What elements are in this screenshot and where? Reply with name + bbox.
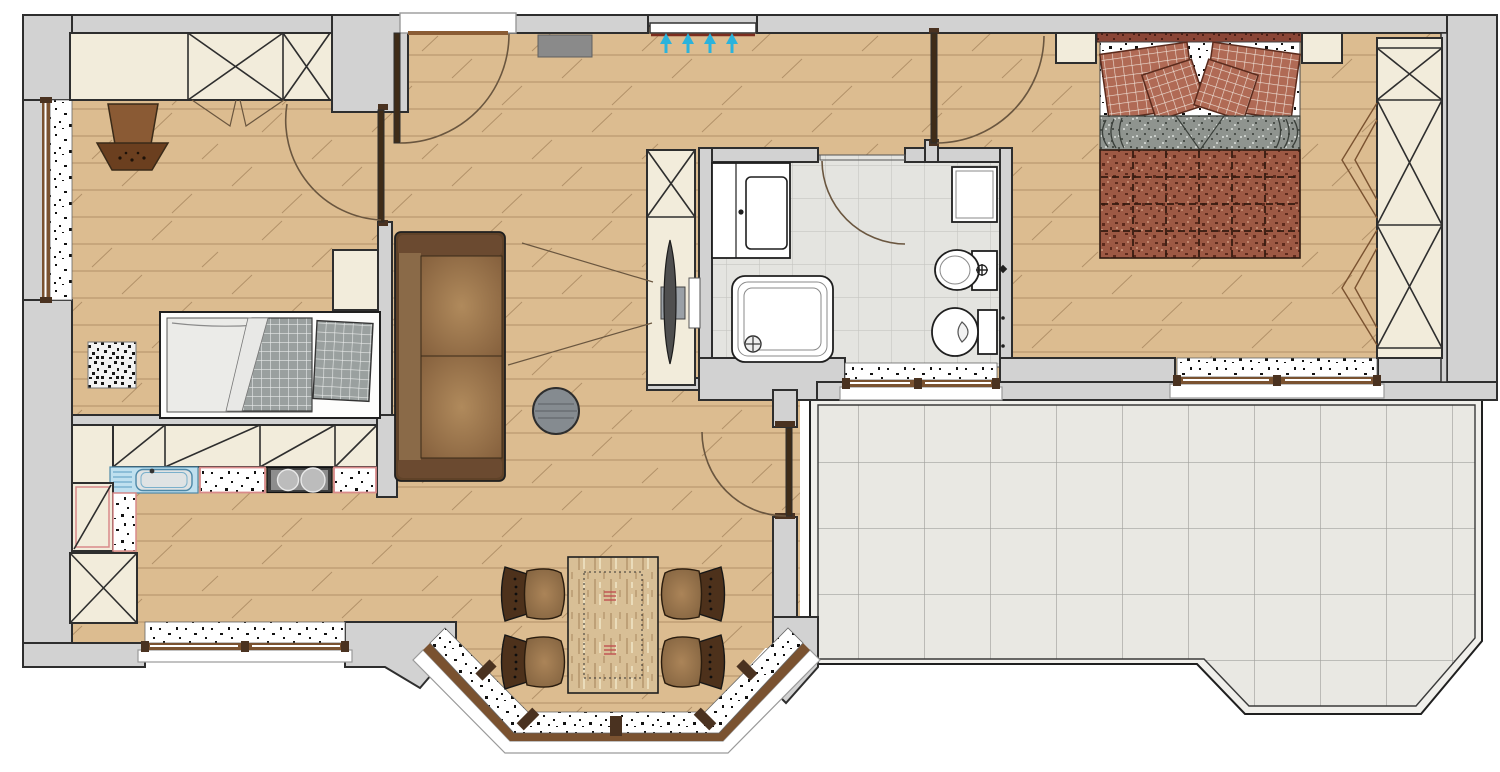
- fridge-cabinet: [72, 483, 113, 551]
- tall-cabinet-x: [70, 553, 137, 623]
- pillow: [313, 321, 373, 402]
- doormat: [538, 35, 592, 57]
- shower: [732, 276, 833, 362]
- upper-cabinet-row: [72, 425, 377, 467]
- worktop: [200, 468, 265, 493]
- floor-plan: [0, 0, 1500, 772]
- window-kitchen: [138, 622, 352, 662]
- sink-unit: [110, 467, 198, 493]
- toilet: [932, 308, 1005, 356]
- rug: [88, 342, 136, 388]
- double-bed: [1097, 33, 1302, 258]
- single-bed: [160, 312, 380, 418]
- worktop-side: [113, 493, 136, 551]
- entry-landing: [400, 13, 516, 33]
- cooktop: [267, 468, 332, 493]
- window-master-bedroom: [1170, 358, 1384, 398]
- entry-threshold: [408, 31, 508, 35]
- dining-chair: [502, 567, 565, 621]
- worktop-right: [334, 468, 376, 493]
- dining-table: [568, 557, 658, 693]
- window-children-room: [40, 97, 72, 303]
- entry-door-leaf: [394, 33, 400, 143]
- window-bathroom: [840, 363, 1002, 400]
- corner-cabinet: [72, 425, 113, 483]
- headboard: [1097, 33, 1302, 42]
- dining-chair: [502, 635, 565, 689]
- washbasin: [952, 167, 997, 222]
- bidet: [935, 250, 1007, 290]
- adjacent-structure: [1447, 15, 1497, 400]
- washing-machine: [712, 163, 790, 258]
- wall-shelf: [333, 250, 378, 310]
- floor-plan-canvas: [0, 0, 1500, 772]
- nightstand-left: [1056, 33, 1096, 63]
- sofa: [395, 232, 505, 481]
- dining-chair: [662, 567, 725, 621]
- dining-chair: [662, 635, 725, 689]
- nightstand-right: [1302, 33, 1342, 63]
